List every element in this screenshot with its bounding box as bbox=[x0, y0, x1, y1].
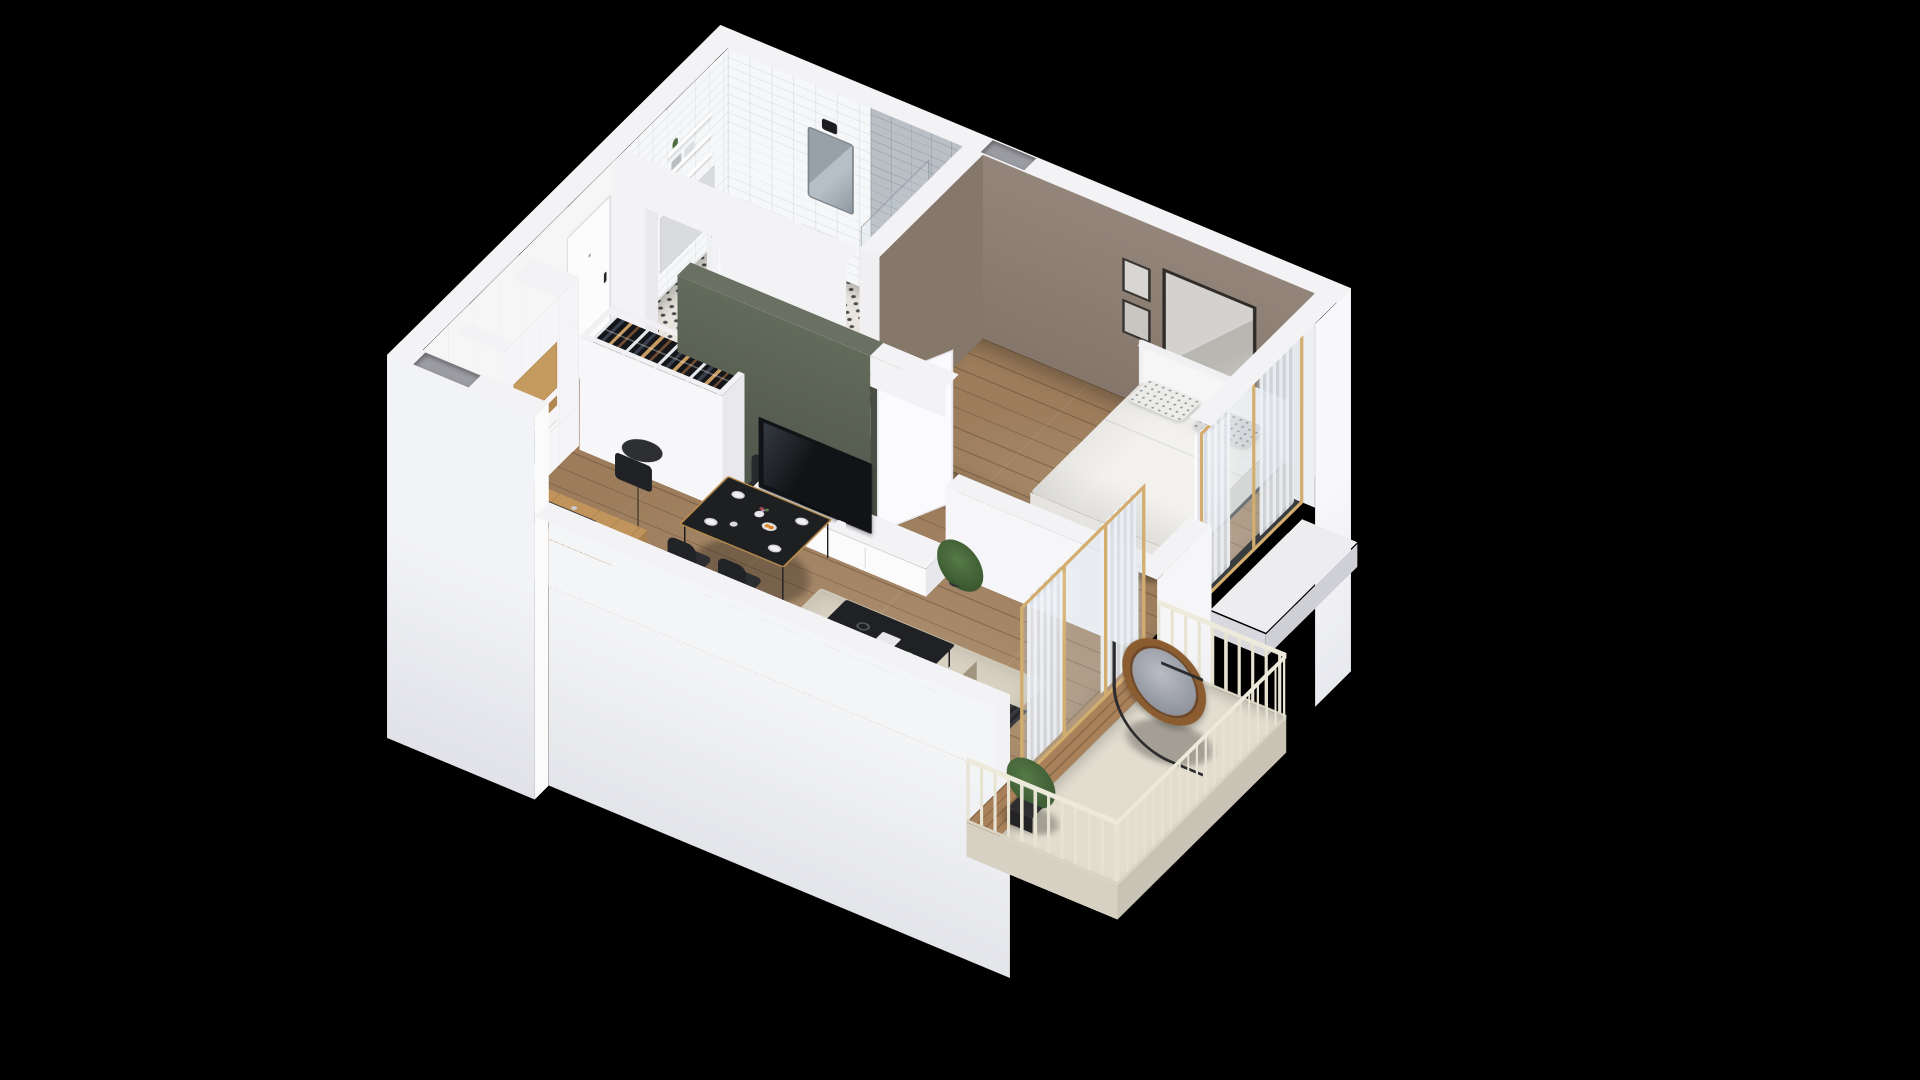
dining-table-leg-4 bbox=[782, 562, 784, 603]
window-mullion bbox=[1252, 383, 1255, 549]
door-mullion-2 bbox=[1104, 525, 1107, 695]
sw-exterior-wall-face bbox=[387, 355, 535, 800]
door-glare bbox=[1029, 564, 1073, 765]
sideboard-drawer-seam-2 bbox=[865, 547, 866, 569]
se-exterior-wall-face bbox=[1315, 288, 1351, 707]
sw-wall-east-cap bbox=[535, 403, 549, 800]
plate-4 bbox=[766, 543, 784, 554]
plate-1 bbox=[729, 489, 747, 500]
window-glare bbox=[1207, 402, 1240, 588]
plate-3 bbox=[793, 516, 811, 527]
door-peephole bbox=[589, 253, 591, 258]
black-background-canvas bbox=[0, 0, 1920, 1080]
carafe bbox=[728, 521, 739, 528]
door-handle bbox=[604, 271, 607, 284]
plate-2 bbox=[702, 516, 720, 527]
